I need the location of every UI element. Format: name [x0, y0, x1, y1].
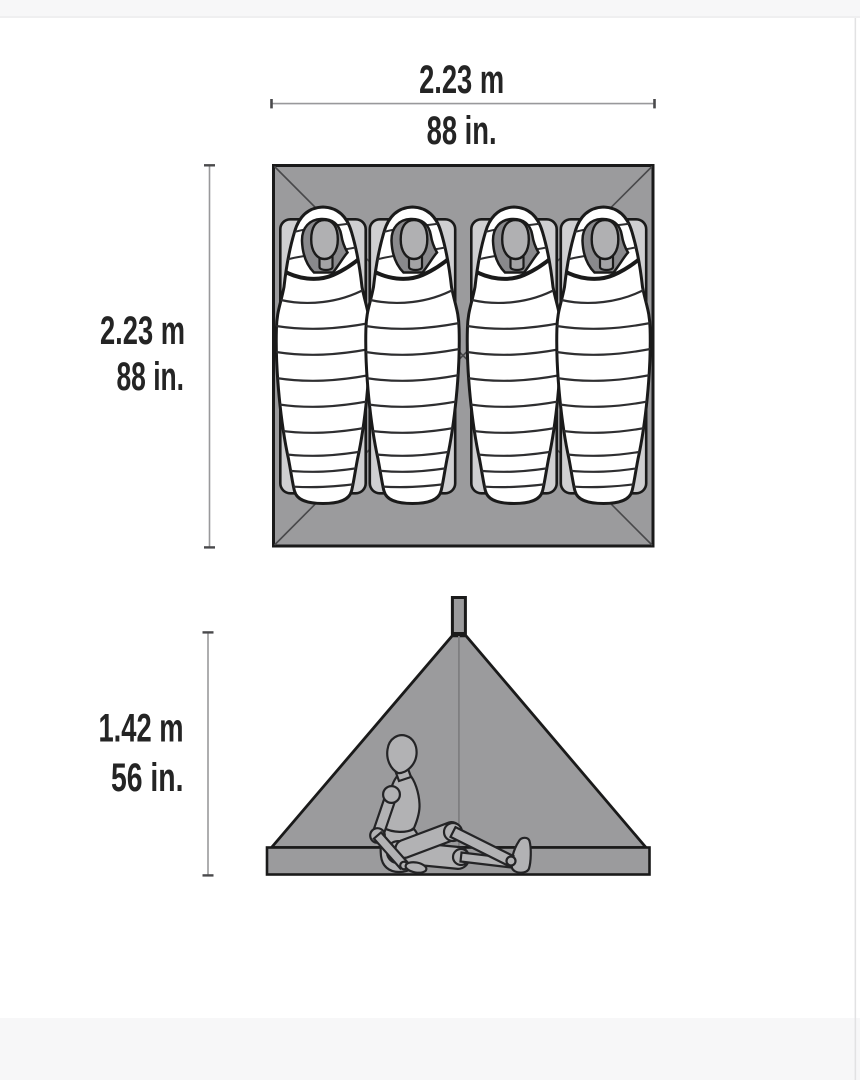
svg-text:2.23 m: 2.23 m [100, 309, 185, 353]
svg-text:56 in.: 56 in. [111, 756, 184, 800]
svg-text:88 in.: 88 in. [427, 109, 497, 153]
svg-text:2.23 m: 2.23 m [419, 58, 504, 102]
svg-text:1.42 m: 1.42 m [99, 707, 184, 751]
svg-text:88 in.: 88 in. [117, 355, 185, 399]
